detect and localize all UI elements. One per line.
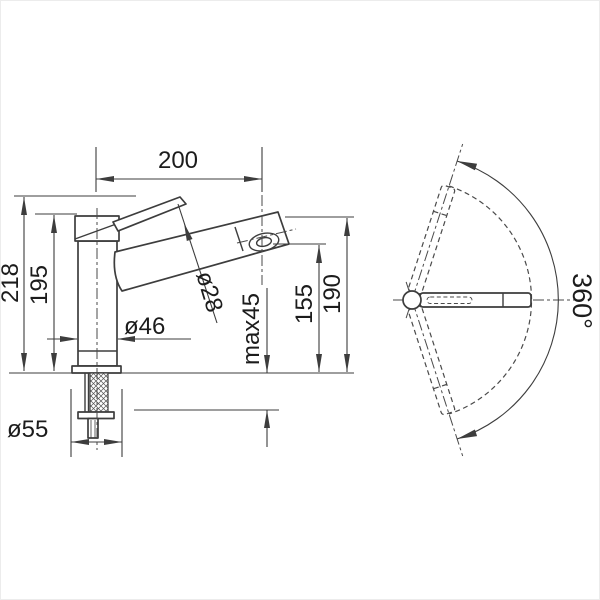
arm-tube [420, 293, 531, 307]
dim-body-top-height: 195 [26, 214, 77, 371]
dim-label-body-diameter: ø46 [124, 313, 165, 340]
pivot-body-circle [403, 291, 421, 309]
dim-label-base-diameter: ø55 [7, 416, 48, 443]
dim-label-body-top-height: 195 [26, 265, 53, 305]
side-view: 200 218 195 ø46 ø28 [1, 147, 354, 457]
dim-label-spout-diameter: ø28 [190, 268, 228, 315]
dim-label-spout-reach: 200 [158, 147, 198, 174]
dim-label-outlet-height: 155 [291, 284, 318, 324]
threaded-stud [90, 373, 108, 412]
dim-label-max-mounting-thickness: max45 [238, 293, 265, 365]
mounting-washer [78, 412, 114, 419]
faucet-dimension-drawing: 200 218 195 ø46 ø28 [0, 0, 600, 600]
dim-max-mounting-thickness: max45 [238, 288, 270, 447]
dim-label-spout-top-height: 190 [319, 274, 346, 314]
faucet-lever [113, 197, 186, 231]
swivel-angle-label: 360° [567, 273, 597, 329]
top-view: 360° [393, 142, 597, 458]
dim-label-total-height: 218 [1, 263, 24, 303]
technical-drawing-svg: 200 218 195 ø46 ø28 [1, 1, 600, 600]
dim-body-diameter: ø46 [47, 313, 191, 342]
supply-rod [85, 373, 89, 412]
dim-spout-reach: 200 [96, 147, 262, 192]
